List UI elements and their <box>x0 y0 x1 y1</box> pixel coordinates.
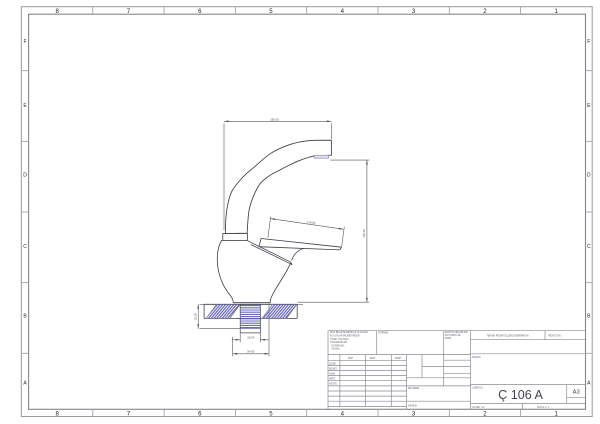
svg-text:1: 1 <box>555 8 559 15</box>
svg-text:DENET.: DENET. <box>329 368 338 370</box>
svg-text:KIRIN: KIRIN <box>445 337 452 340</box>
svg-text:DOĞRUSAL:: DOĞRUSAL: <box>332 344 346 347</box>
svg-text:MALZEME:: MALZEME: <box>408 387 420 390</box>
svg-text:2: 2 <box>483 8 487 15</box>
svg-text:TEKNİK RESMİ ÖLÇEKLENDİRMEYİN: TEKNİK RESMİ ÖLÇEKLENDİRMEYİN <box>487 335 529 338</box>
svg-text:Ç 106 A: Ç 106 A <box>498 388 543 402</box>
svg-text:C: C <box>23 244 27 250</box>
svg-text:YÜZEY KALİTESİ:: YÜZEY KALİTESİ: <box>330 338 349 341</box>
svg-text:8: 8 <box>56 411 60 418</box>
svg-text:F: F <box>23 39 26 45</box>
svg-text:AKSİ BELİRTİLMEDİKÇE ÖLÇÜLER:: AKSİ BELİRTİLMEDİKÇE ÖLÇÜLER: <box>330 331 369 334</box>
svg-text:D: D <box>587 173 591 179</box>
svg-text:ÇİZİM NO.: ÇİZİM NO. <box>472 387 483 390</box>
svg-text:160.00: 160.00 <box>362 229 366 238</box>
svg-text:TOLERANSLAR:: TOLERANSLAR: <box>330 341 348 344</box>
svg-text:54.00: 54.00 <box>247 350 254 354</box>
svg-text:BİTİRME:: BİTİRME: <box>378 332 389 335</box>
svg-text:AĞIRLIK:: AĞIRLIK: <box>408 405 418 408</box>
svg-text:26.00: 26.00 <box>247 336 254 340</box>
svg-text:ÇİZEN: ÇİZEN <box>329 362 336 365</box>
svg-text:KOYUTLAR MİLİMETREDİR: KOYUTLAR MİLİMETREDİR <box>330 335 360 338</box>
svg-text:D: D <box>23 173 27 179</box>
svg-text:1: 1 <box>555 411 559 418</box>
svg-text:2: 2 <box>483 411 487 418</box>
svg-text:AÇISAL:: AÇISAL: <box>332 348 341 351</box>
svg-text:A3: A3 <box>573 389 580 395</box>
svg-text:ONAY: ONAY <box>329 373 336 376</box>
svg-text:KALİTE: KALİTE <box>329 383 337 386</box>
svg-text:BAŞLIK:: BAŞLIK: <box>472 356 481 359</box>
svg-text:TARİH: TARİH <box>395 357 402 360</box>
svg-text:ÜRET.: ÜRET. <box>329 378 336 381</box>
svg-text:F: F <box>587 39 590 45</box>
svg-text:İSİM: İSİM <box>348 357 353 360</box>
svg-text:REVİZYON: REVİZYON <box>548 335 560 338</box>
svg-text:C: C <box>587 244 591 250</box>
svg-text:8: 8 <box>56 8 60 15</box>
svg-text:İMZA: İMZA <box>370 357 376 360</box>
svg-text:150.00: 150.00 <box>270 117 279 121</box>
svg-text:SAYFA 1 / 1: SAYFA 1 / 1 <box>537 406 550 409</box>
svg-text:ÖLÇEK: 1:2: ÖLÇEK: 1:2 <box>472 406 485 409</box>
svg-text:25.00: 25.00 <box>193 313 197 320</box>
